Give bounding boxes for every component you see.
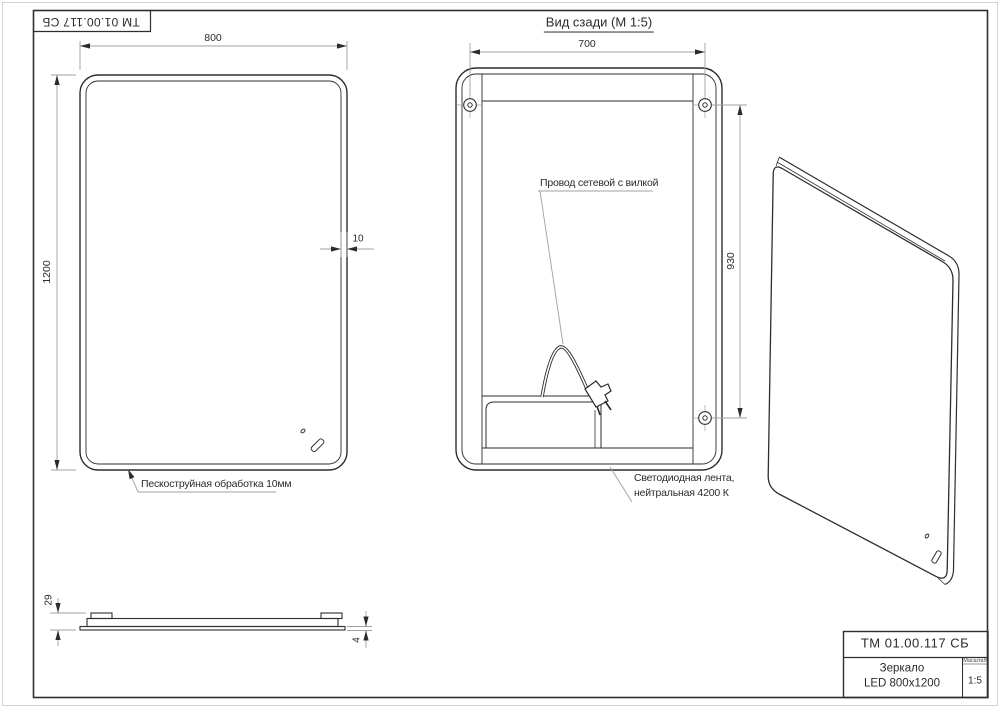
corner-stamp-doc-number: ТМ 01.00.117 СБ	[42, 14, 140, 28]
touch-sensor-icon	[300, 428, 325, 452]
dim-front-edge: 10	[352, 233, 363, 245]
dim-back-screw-h: 700	[578, 38, 596, 50]
dim-front-width: 800	[204, 32, 222, 44]
profile-view	[80, 613, 345, 630]
title-block-name-line2: LED 800x1200	[864, 677, 940, 690]
iso-view	[768, 157, 959, 585]
dim-front-height: 1200	[41, 260, 53, 283]
dim-profile-thickness: 29	[43, 594, 55, 605]
title-block-scale-label: Масштаб	[963, 657, 987, 663]
drawing-sheet: ТМ 01.00.117 СБ Вид сзади (М 1:5) 800 12…	[0, 0, 1000, 708]
led-driver-box	[482, 396, 601, 448]
back-view-dimension-lines	[470, 43, 747, 502]
front-view	[80, 75, 347, 470]
note-led-line1: Светодиодная лента,	[634, 472, 734, 484]
note-sandblast: Пескоструйная обработка 10мм	[141, 478, 291, 490]
profile-view-dimension-lines	[50, 598, 372, 648]
page-edge	[3, 3, 998, 706]
dim-glass-thickness: 4	[351, 637, 363, 643]
title-block-doc-number: ТМ 01.00.117 СБ	[861, 637, 969, 652]
drawing-frame	[34, 11, 988, 698]
front-view-dimension-lines	[51, 41, 374, 492]
title-block-name-line1: Зеркало	[880, 662, 925, 675]
touch-sensor-icon-iso	[924, 533, 941, 564]
power-cord	[542, 347, 611, 415]
title-block-scale-value: 1:5	[968, 675, 982, 687]
back-view	[456, 68, 722, 470]
dim-back-screw-v: 930	[725, 252, 737, 270]
note-cord: Провод сетевой с вилкой	[540, 177, 658, 189]
back-view-title: Вид сзади (М 1:5)	[544, 16, 654, 33]
note-led-line2: нейтральная 4200 К	[634, 487, 729, 499]
drawing-linework	[0, 0, 1000, 708]
